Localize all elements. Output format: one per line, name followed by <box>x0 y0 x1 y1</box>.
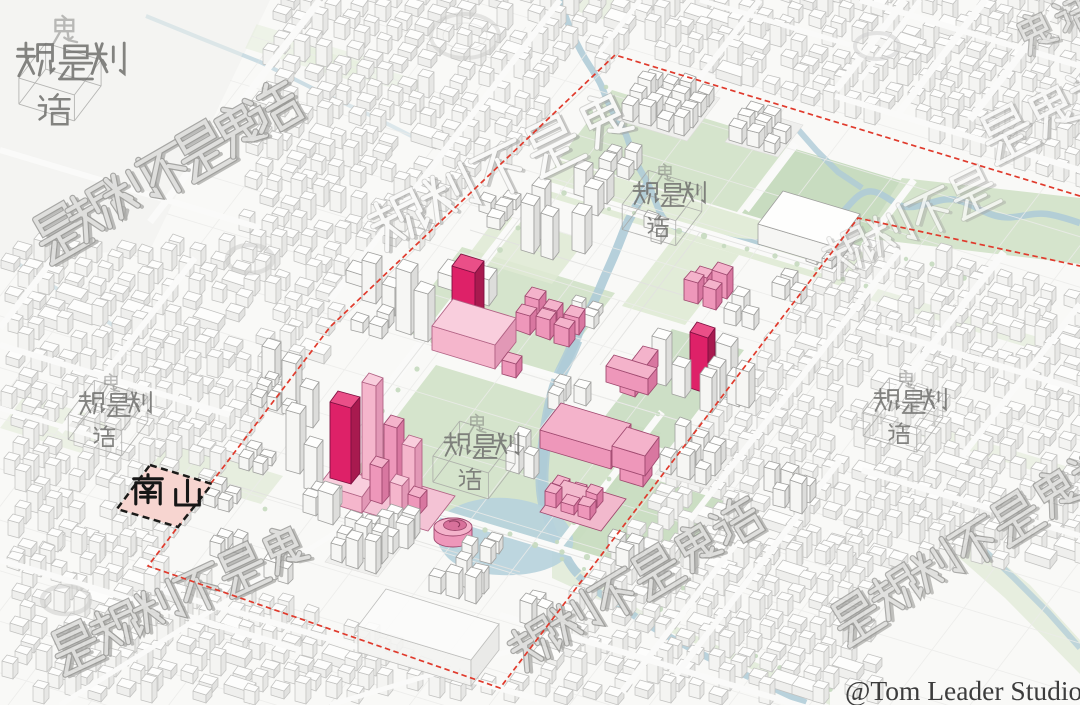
svg-text:@Tom Leader Studio: @Tom Leader Studio <box>845 675 1080 705</box>
